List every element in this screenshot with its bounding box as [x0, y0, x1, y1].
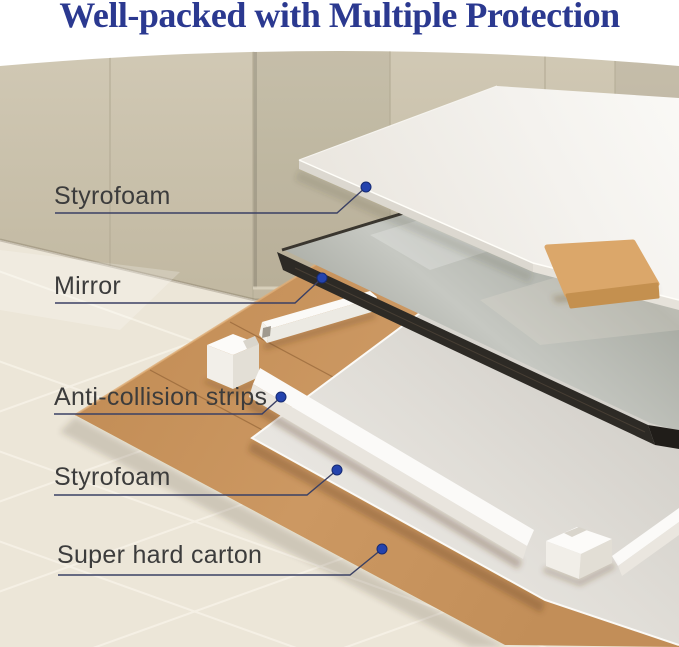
- product-infographic: Well-packed with Multiple Protection Sty…: [0, 0, 679, 647]
- marker-dot-styrofoam-bottom: [332, 465, 342, 475]
- marker-dot-mirror: [317, 273, 327, 283]
- marker-dot-anti-collision-strips: [276, 392, 286, 402]
- callout-label-super-hard-carton: Super hard carton: [57, 542, 262, 568]
- cardboard-corner-protector: [547, 242, 658, 307]
- callout-label-styrofoam-bottom: Styrofoam: [54, 464, 171, 490]
- page-title: Well-packed with Multiple Protection: [0, 0, 679, 36]
- marker-dot-styrofoam-top: [361, 182, 371, 192]
- callout-label-mirror: Mirror: [54, 273, 121, 299]
- callout-label-anti-collision-strips: Anti-collision strips: [54, 384, 267, 410]
- callout-label-styrofoam-top: Styrofoam: [54, 183, 171, 209]
- marker-dot-super-hard-carton: [377, 544, 387, 554]
